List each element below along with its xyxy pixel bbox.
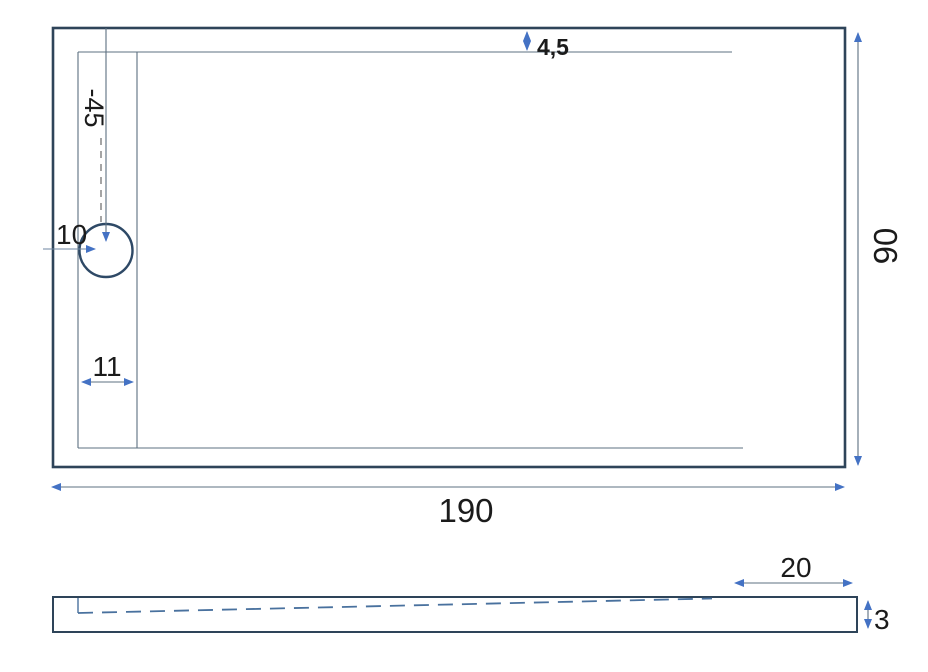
- top-view-outer-outline: [53, 28, 845, 467]
- drawing-canvas: 4,5 -45 10 11 90 190 20 3: [0, 0, 928, 672]
- dim-thickness-label: 3: [874, 604, 890, 635]
- dim-drain-horizontal-label: 10: [56, 219, 87, 250]
- dim-width-label: 190: [438, 492, 493, 529]
- dim-flat-zone-label: 20: [780, 552, 811, 583]
- dim-channel-label: 11: [92, 351, 121, 382]
- dim-depth-label: 90: [867, 228, 904, 265]
- side-view-slope-dashed-line: [78, 599, 712, 614]
- shower-tray-technical-drawing: 4,5 -45 10 11 90 190 20 3: [0, 0, 928, 672]
- dim-drain-vertical-label: -45: [79, 88, 109, 127]
- side-view-outline: [53, 597, 857, 632]
- dim-rim-offset-label: 4,5: [537, 34, 569, 60]
